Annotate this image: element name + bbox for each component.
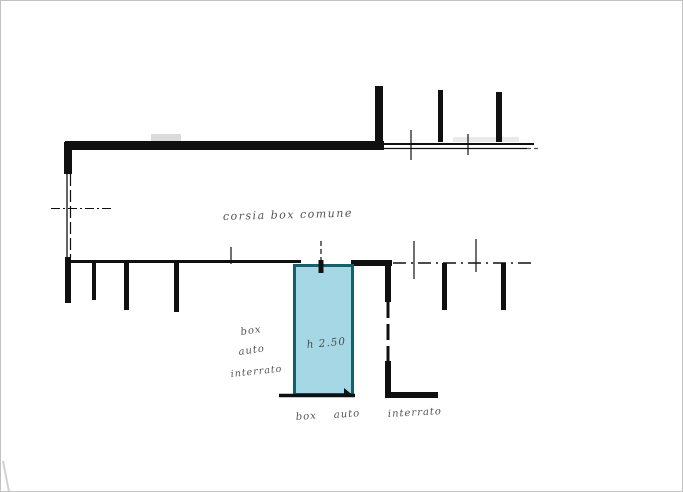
- survey-pin-head: [319, 260, 324, 273]
- top-wall: [65, 141, 384, 150]
- left-wall-lower: [65, 257, 71, 303]
- upper-divider-tick: [375, 86, 383, 142]
- upper-divider-tick: [496, 92, 502, 142]
- bottom-right-wall: [385, 392, 438, 398]
- scan-smudge: [151, 134, 181, 141]
- lower-divider-tick: [442, 263, 447, 310]
- right-wall-upper: [385, 262, 391, 302]
- side-note-line-3: interrato: [230, 364, 283, 380]
- upper-divider-tick: [438, 90, 443, 142]
- right-wall-lower: [385, 361, 391, 397]
- side-note-line-1: box: [240, 324, 262, 338]
- lower-divider-tick: [92, 263, 96, 300]
- left-wall-corner: [64, 142, 72, 174]
- lower-divider-tick: [501, 263, 506, 310]
- bottom-note-word-3: interrato: [388, 406, 443, 420]
- page-edge-mark: [3, 461, 9, 492]
- lower-divider-tick: [124, 263, 129, 310]
- lower-divider-tick: [174, 263, 179, 312]
- plan-drawing-svg: corsia box comuneh 2.50boxautointerratob…: [1, 1, 683, 492]
- bottom-note-word-1: box: [295, 411, 317, 423]
- scanned-plan-page: corsia box comuneh 2.50boxautointerratob…: [0, 0, 683, 492]
- highlighted-unit: [295, 266, 353, 395]
- bottom-note-word-2: auto: [333, 408, 360, 421]
- scan-smudge: [453, 137, 519, 142]
- lane-label: corsia box comune: [223, 207, 353, 223]
- side-note-line-2: auto: [238, 343, 266, 358]
